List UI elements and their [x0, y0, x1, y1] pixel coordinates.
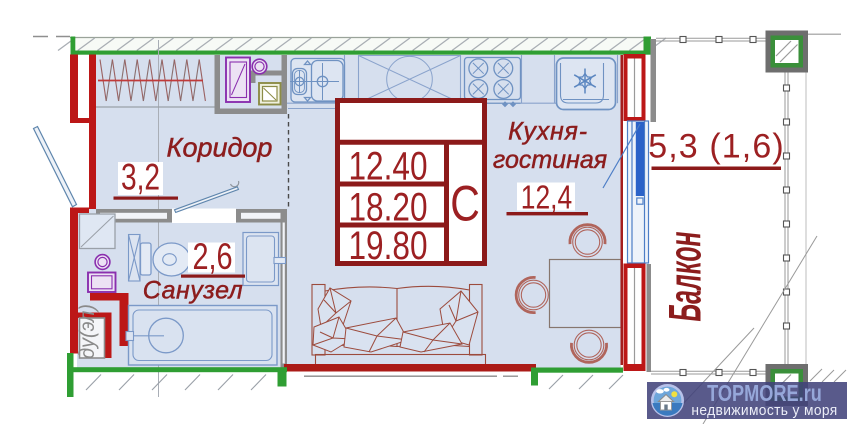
svg-text:12.40: 12.40	[348, 143, 427, 188]
svg-text:2,6: 2,6	[192, 237, 232, 278]
svg-text:Балкон: Балкон	[660, 231, 711, 321]
svg-text:12,4: 12,4	[521, 180, 572, 216]
svg-text:ду(эл): ду(эл)	[76, 304, 100, 359]
svg-text:Коридор: Коридор	[167, 133, 273, 163]
svg-text:Санузел: Санузел	[143, 277, 244, 305]
svg-text:С: С	[450, 176, 480, 232]
svg-text:недвижимость у моря: недвижимость у моря	[691, 402, 837, 419]
svg-text:Кухня-: Кухня-	[508, 118, 588, 146]
svg-text:19.80: 19.80	[348, 222, 427, 267]
svg-text:5,3 (1,6): 5,3 (1,6)	[648, 128, 785, 166]
svg-text:гостиная: гостиная	[493, 146, 607, 174]
svg-text:3,2: 3,2	[121, 156, 160, 198]
